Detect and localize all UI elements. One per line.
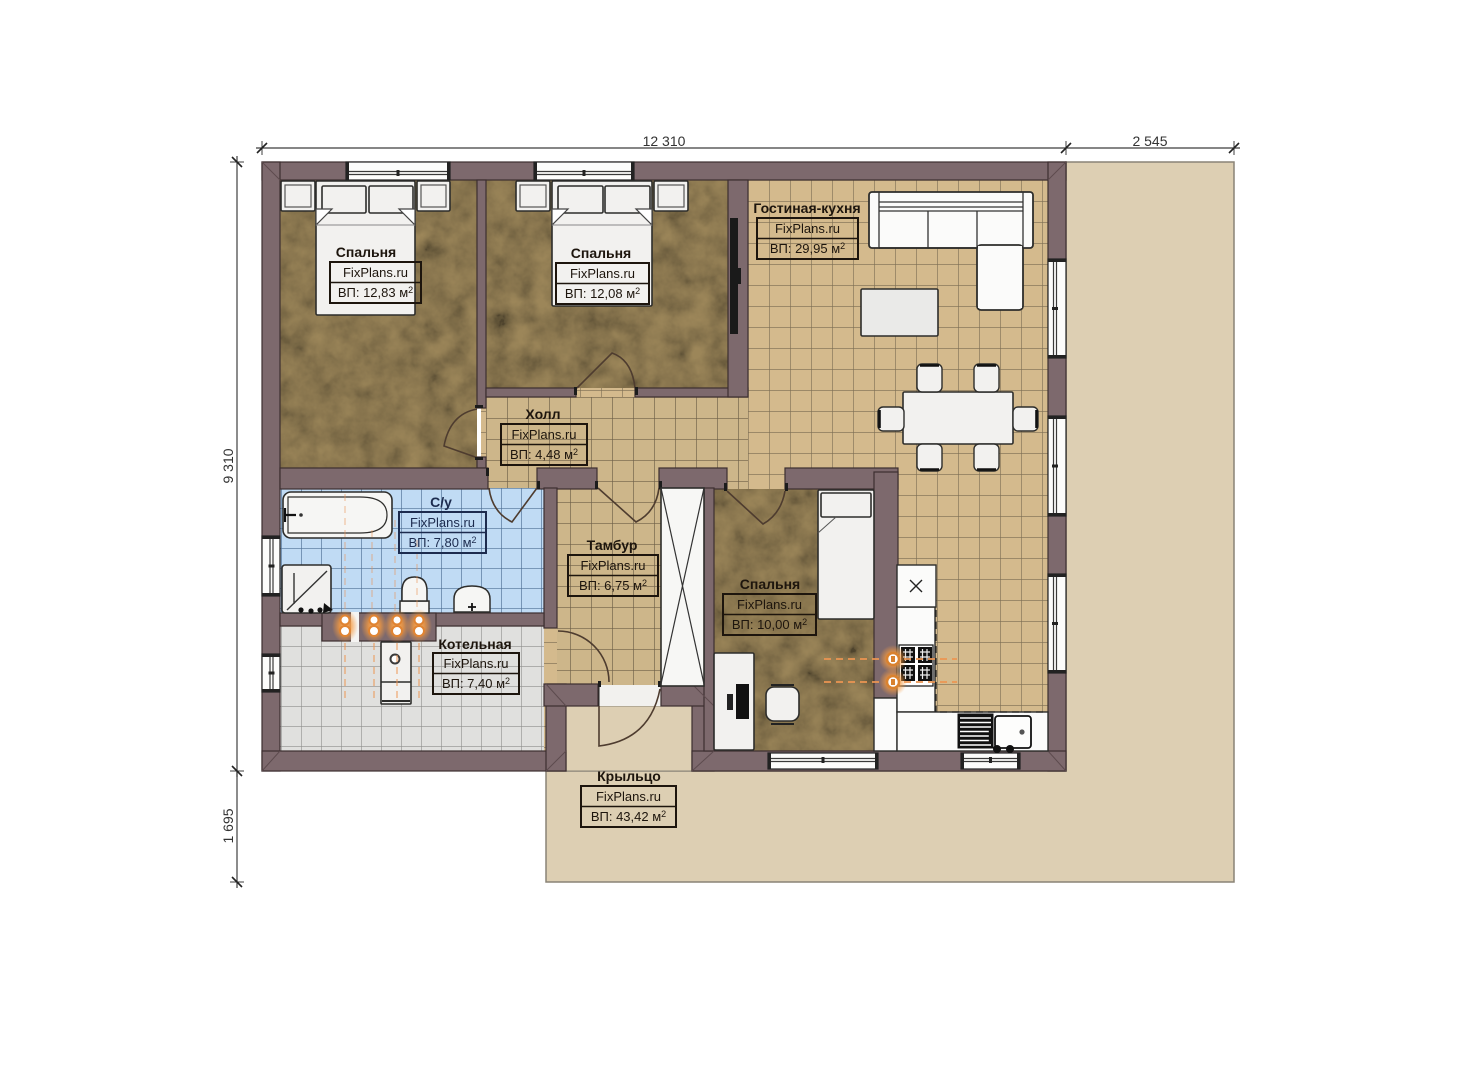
svg-text:FixPlans.ru: FixPlans.ru bbox=[570, 266, 635, 281]
svg-text:Холл: Холл bbox=[525, 406, 560, 422]
svg-text:FixPlans.ru: FixPlans.ru bbox=[737, 597, 802, 612]
svg-text:Котельная: Котельная bbox=[438, 636, 511, 652]
svg-text:С/у: С/у bbox=[430, 494, 452, 510]
svg-text:1 695: 1 695 bbox=[220, 808, 236, 843]
svg-text:FixPlans.ru: FixPlans.ru bbox=[580, 558, 645, 573]
svg-text:9 310: 9 310 bbox=[220, 448, 236, 483]
svg-text:12 310: 12 310 bbox=[643, 133, 686, 149]
svg-text:Спальня: Спальня bbox=[571, 245, 631, 261]
svg-text:ВП: 7,40 м2: ВП: 7,40 м2 bbox=[442, 676, 510, 691]
svg-text:FixPlans.ru: FixPlans.ru bbox=[775, 221, 840, 236]
svg-text:ВП: 10,00 м2: ВП: 10,00 м2 bbox=[732, 617, 807, 632]
svg-text:2 545: 2 545 bbox=[1132, 133, 1167, 149]
svg-text:FixPlans.ru: FixPlans.ru bbox=[443, 656, 508, 671]
svg-text:Спальня: Спальня bbox=[740, 576, 800, 592]
svg-text:FixPlans.ru: FixPlans.ru bbox=[511, 427, 576, 442]
svg-text:ВП: 29,95 м2: ВП: 29,95 м2 bbox=[770, 241, 845, 256]
svg-text:ВП: 12,83 м2: ВП: 12,83 м2 bbox=[338, 285, 413, 300]
svg-text:FixPlans.ru: FixPlans.ru bbox=[596, 789, 661, 804]
svg-text:ВП: 7,80 м2: ВП: 7,80 м2 bbox=[408, 535, 476, 550]
svg-text:Спальня: Спальня bbox=[336, 244, 396, 260]
svg-text:ВП: 6,75 м2: ВП: 6,75 м2 bbox=[579, 578, 647, 593]
svg-text:ВП: 4,48 м2: ВП: 4,48 м2 bbox=[510, 447, 578, 462]
svg-text:FixPlans.ru: FixPlans.ru bbox=[410, 515, 475, 530]
svg-text:ВП: 43,42 м2: ВП: 43,42 м2 bbox=[591, 809, 666, 824]
svg-text:FixPlans.ru: FixPlans.ru bbox=[343, 265, 408, 280]
svg-text:Тамбур: Тамбур bbox=[587, 537, 638, 553]
svg-text:ВП: 12,08 м2: ВП: 12,08 м2 bbox=[565, 286, 640, 301]
svg-text:Крыльцо: Крыльцо bbox=[597, 768, 661, 784]
svg-text:Гостиная-кухня: Гостиная-кухня bbox=[753, 200, 860, 216]
